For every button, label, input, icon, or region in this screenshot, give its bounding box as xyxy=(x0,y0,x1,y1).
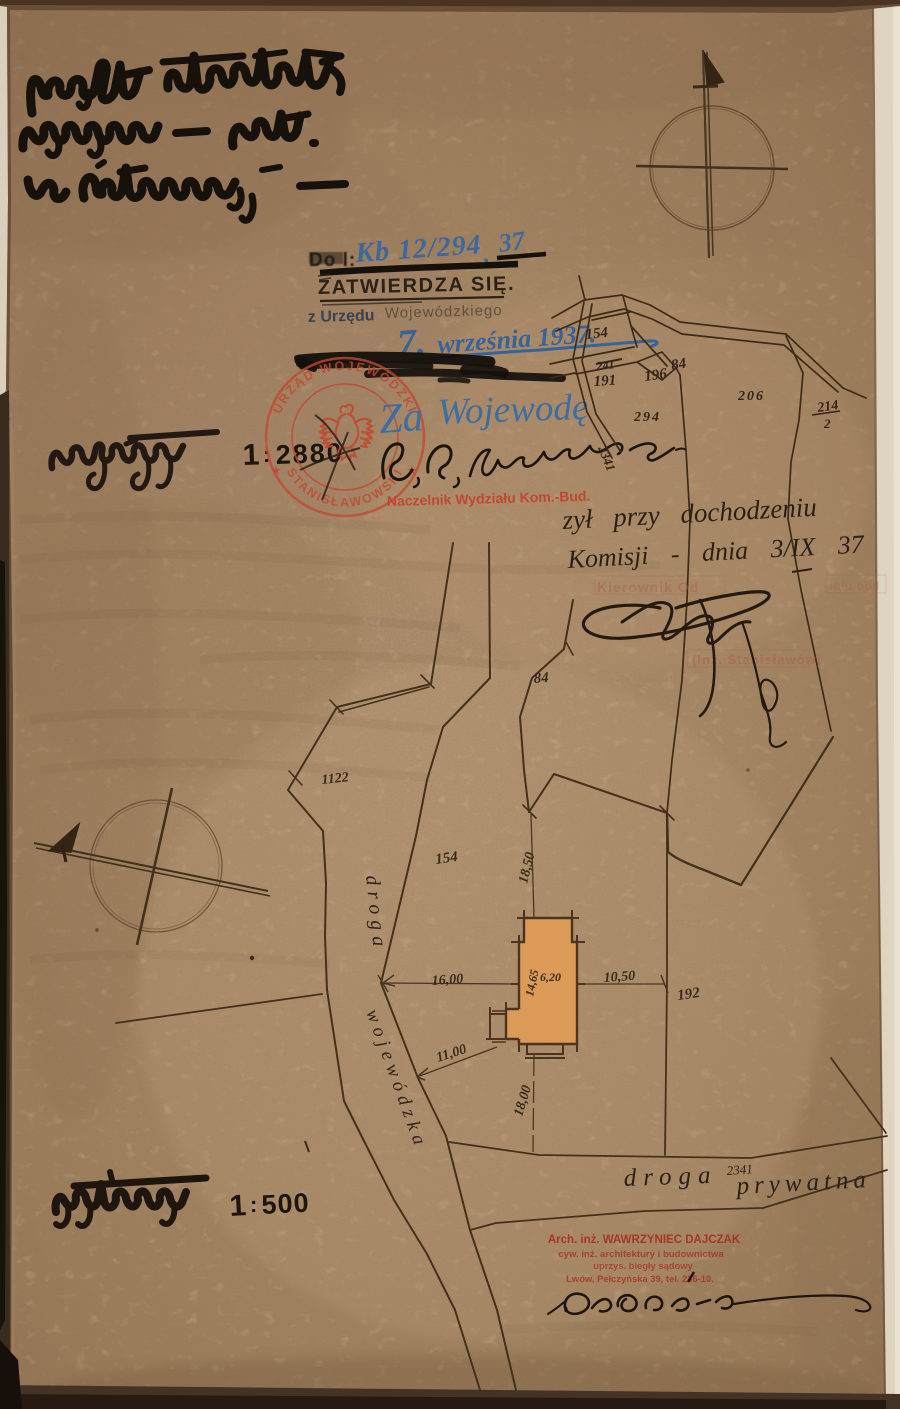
svg-text:154: 154 xyxy=(585,325,610,343)
svg-text:Wojewódzkiego: Wojewódzkiego xyxy=(385,302,503,322)
svg-text:206: 206 xyxy=(737,389,765,404)
svg-text:uprzys. biegły sądowy: uprzys. biegły sądowy xyxy=(593,1260,693,1271)
svg-text:2: 2 xyxy=(823,416,831,431)
svg-text:droga: droga xyxy=(623,1162,718,1192)
svg-text:z Urzędu: z Urzędu xyxy=(308,307,375,326)
svg-text:Arch. inż. WAWRZYNIEC DAJCZAK: Arch. inż. WAWRZYNIEC DAJCZAK xyxy=(548,1234,741,1246)
svg-text:154: 154 xyxy=(434,849,459,868)
svg-text:ZATWIERDZA SIĘ.: ZATWIERDZA SIĘ. xyxy=(318,273,516,299)
svg-text:294: 294 xyxy=(633,410,661,425)
svg-text:1: 1 xyxy=(242,438,260,472)
svg-text:(Inż. Stanisławów): (Inż. Stanisławów) xyxy=(692,652,822,667)
svg-text:1: 1 xyxy=(229,1189,247,1223)
svg-text:16,00: 16,00 xyxy=(431,972,463,989)
svg-text:iału bud: iału bud xyxy=(830,579,880,593)
svg-text:cyw. inż. architektury i budow: cyw. inż. architektury i budownictwa xyxy=(558,1249,724,1260)
svg-text:84: 84 xyxy=(533,670,550,687)
svg-text:241: 241 xyxy=(595,357,615,373)
svg-text:6,20: 6,20 xyxy=(540,970,561,984)
svg-text:191: 191 xyxy=(593,372,617,390)
svg-text:Za: Za xyxy=(377,394,424,443)
svg-text:★: ★ xyxy=(271,465,283,477)
svg-text:37: 37 xyxy=(496,225,528,258)
svg-text:196: 196 xyxy=(643,366,668,385)
svg-text:Kierownik Od: Kierownik Od xyxy=(597,579,699,595)
svg-text:10,50: 10,50 xyxy=(603,969,635,986)
svg-text::: : xyxy=(250,1192,257,1217)
svg-text:2341: 2341 xyxy=(726,1161,753,1178)
svg-text:192: 192 xyxy=(676,985,701,1004)
svg-text:Wojewodę: Wojewodę xyxy=(437,387,589,433)
svg-text:500: 500 xyxy=(261,1188,311,1220)
